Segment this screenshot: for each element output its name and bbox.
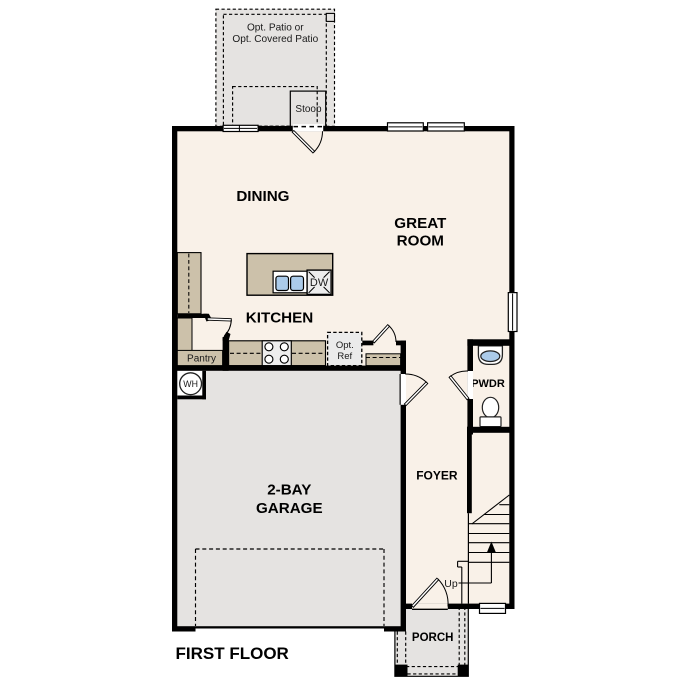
svg-text:PORCH: PORCH <box>412 632 454 644</box>
svg-text:GREAT: GREAT <box>394 215 447 232</box>
svg-text:Opt. Covered Patio: Opt. Covered Patio <box>232 34 318 45</box>
svg-text:2-BAY: 2-BAY <box>267 482 311 499</box>
svg-text:ROOM: ROOM <box>397 233 444 250</box>
svg-text:Up: Up <box>444 578 458 590</box>
svg-text:DW: DW <box>310 277 329 289</box>
svg-text:FOYER: FOYER <box>416 468 458 482</box>
svg-text:Opt.: Opt. <box>336 340 354 351</box>
svg-text:Pantry: Pantry <box>187 353 216 364</box>
svg-text:Ref: Ref <box>337 351 352 362</box>
svg-text:PWDR: PWDR <box>471 378 505 390</box>
svg-text:KITCHEN: KITCHEN <box>246 310 314 327</box>
svg-text:FIRST FLOOR: FIRST FLOOR <box>176 644 289 663</box>
svg-text:Opt. Patio or: Opt. Patio or <box>247 23 304 34</box>
svg-text:GARAGE: GARAGE <box>256 500 323 517</box>
svg-text:DINING: DINING <box>236 188 289 205</box>
svg-text:Stoop: Stoop <box>295 104 322 115</box>
svg-text:WH: WH <box>183 379 198 389</box>
